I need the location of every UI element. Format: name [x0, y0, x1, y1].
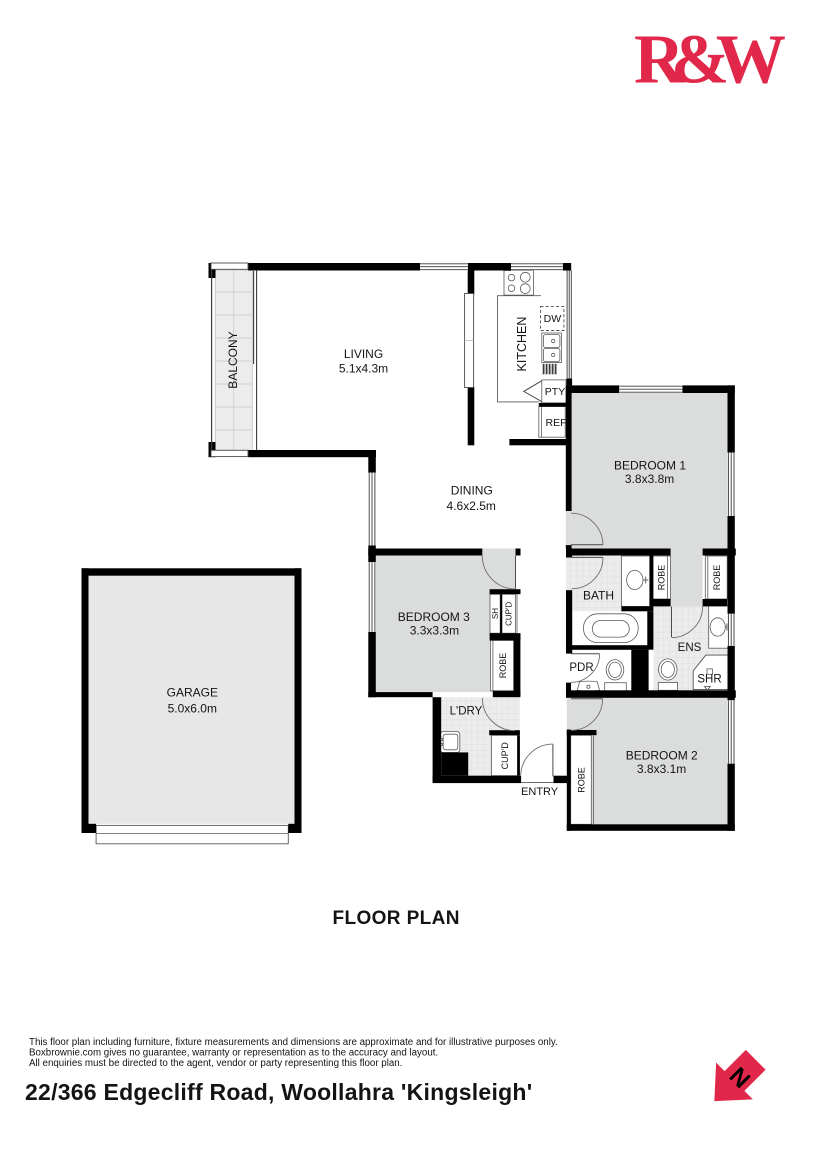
svg-text:5.1x4.3m: 5.1x4.3m	[339, 362, 388, 376]
svg-text:BEDROOM 3: BEDROOM 3	[398, 610, 470, 624]
svg-text:BEDROOM 1: BEDROOM 1	[614, 458, 686, 472]
svg-text:ENTRY: ENTRY	[521, 786, 559, 798]
svg-text:SH: SH	[491, 608, 500, 619]
svg-text:SHR: SHR	[697, 673, 721, 685]
svg-text:R&W: R&W	[634, 22, 785, 99]
svg-text:5.0x6.0m: 5.0x6.0m	[168, 702, 217, 716]
svg-text:DINING: DINING	[451, 483, 493, 497]
svg-text:REF: REF	[546, 417, 567, 429]
svg-text:This floor plan including furn: This floor plan including furniture, fix…	[29, 1037, 558, 1048]
svg-text:3.3x3.3m: 3.3x3.3m	[410, 624, 459, 638]
svg-text:PDR: PDR	[569, 662, 593, 674]
svg-text:ROBE: ROBE	[656, 565, 666, 591]
svg-text:GARAGE: GARAGE	[167, 686, 218, 700]
svg-text:ROBE: ROBE	[498, 653, 508, 679]
svg-text:All enquiries must be directed: All enquiries must be directed to the ag…	[29, 1058, 402, 1069]
svg-text:DW: DW	[544, 313, 562, 325]
svg-text:L'DRY: L'DRY	[450, 706, 483, 718]
svg-text:FLOOR PLAN: FLOOR PLAN	[332, 908, 460, 929]
svg-text:Boxbrownie.com gives no guaran: Boxbrownie.com gives no guarantee, warra…	[29, 1048, 438, 1059]
svg-text:3.8x3.1m: 3.8x3.1m	[637, 762, 686, 776]
svg-text:ENS: ENS	[678, 642, 702, 654]
svg-text:4.6x2.5m: 4.6x2.5m	[447, 499, 496, 513]
svg-text:PTY: PTY	[545, 386, 565, 398]
svg-text:CUP'D: CUP'D	[505, 601, 514, 625]
svg-text:ROBE: ROBE	[712, 565, 722, 591]
svg-text:CUP'D: CUP'D	[500, 742, 510, 770]
svg-text:KITCHEN: KITCHEN	[515, 317, 529, 372]
svg-text:BATH: BATH	[583, 589, 614, 603]
svg-text:3.8x3.8m: 3.8x3.8m	[625, 472, 674, 486]
svg-text:BALCONY: BALCONY	[226, 331, 240, 388]
svg-text:22/366 Edgecliff Road, Woollah: 22/366 Edgecliff Road, Woollahra 'Kingsl…	[25, 1079, 532, 1105]
svg-text:ROBE: ROBE	[576, 767, 586, 793]
svg-text:BEDROOM 2: BEDROOM 2	[626, 748, 698, 762]
svg-text:LIVING: LIVING	[344, 347, 383, 361]
